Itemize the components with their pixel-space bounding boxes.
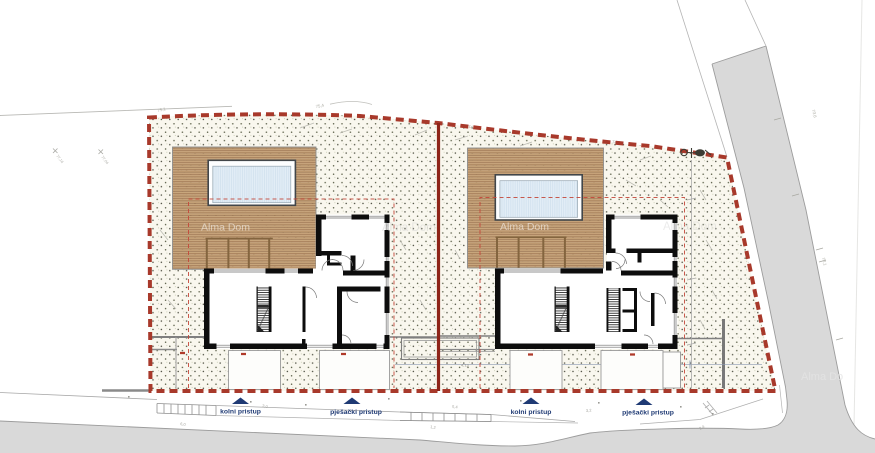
svg-text:Alma Do: Alma Do	[801, 371, 843, 383]
svg-text:Alma Dom: Alma Dom	[382, 222, 436, 234]
svg-text:Alma Dom: Alma Dom	[500, 221, 549, 233]
svg-text:Alma Dom: Alma Dom	[201, 222, 250, 234]
svg-text:kolni pristup: kolni pristup	[511, 409, 552, 416]
svg-text:4,13: 4,13	[461, 363, 470, 368]
svg-text:kolni pristup: kolni pristup	[220, 409, 261, 416]
svg-text:pješački pristup: pješački pristup	[622, 410, 674, 417]
svg-text:Alma Dom: Alma Dom	[663, 221, 717, 233]
svg-text:pješački pristup: pješački pristup	[330, 409, 382, 416]
